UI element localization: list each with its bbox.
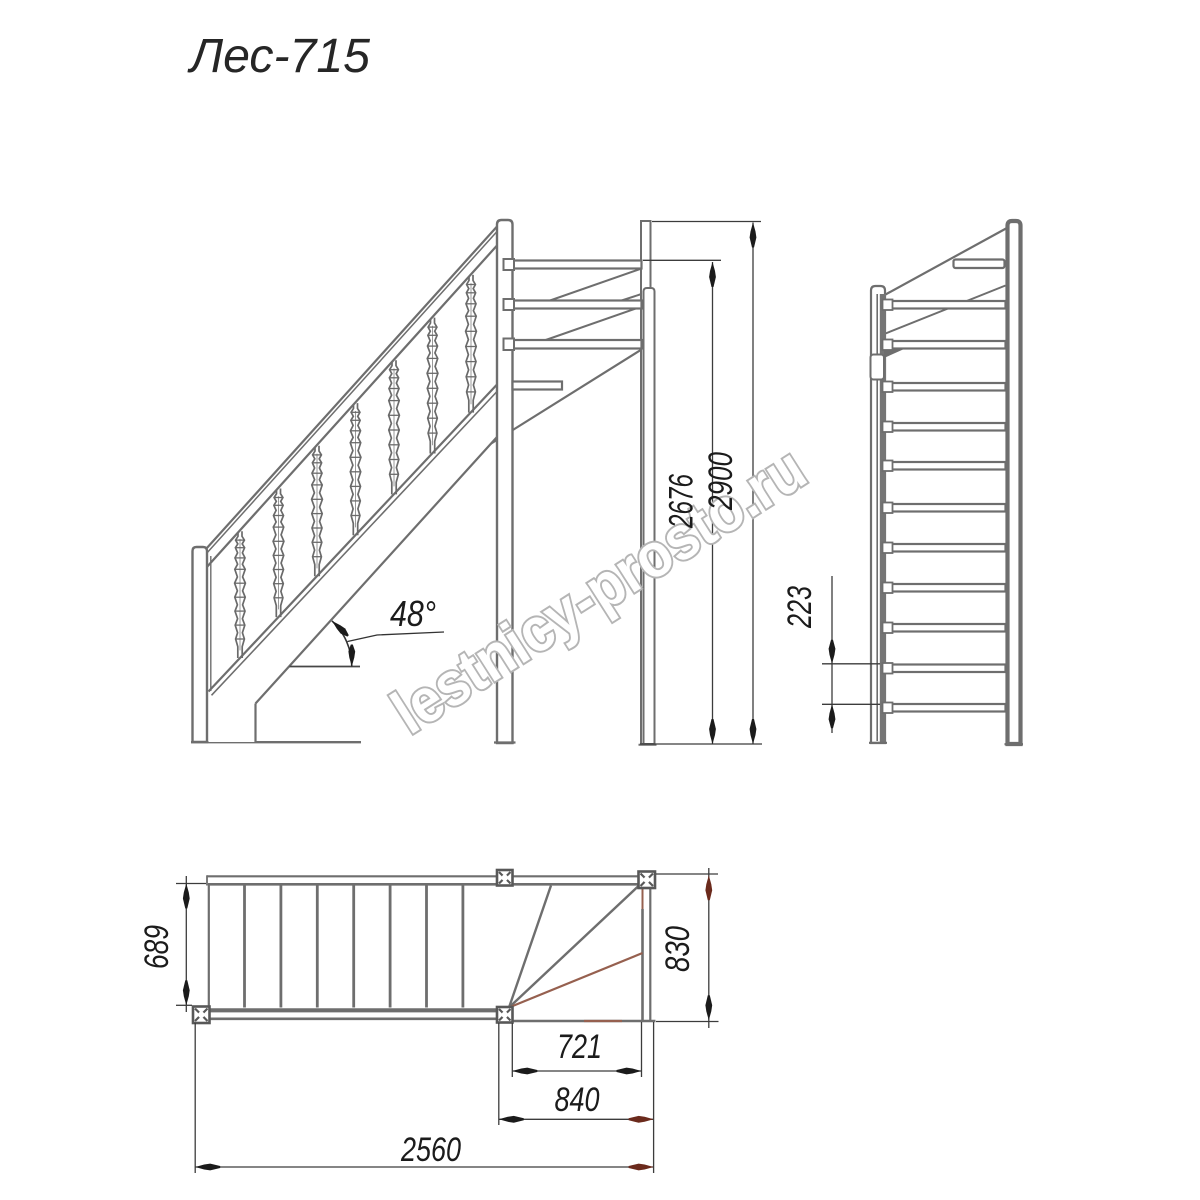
svg-text:223: 223	[781, 586, 819, 629]
svg-text:840: 840	[555, 1081, 600, 1119]
svg-text:2900: 2900	[702, 452, 740, 511]
svg-text:Лес-715: Лес-715	[187, 30, 370, 83]
svg-text:2560: 2560	[400, 1131, 461, 1169]
svg-text:721: 721	[557, 1028, 602, 1066]
svg-text:830: 830	[659, 926, 697, 972]
svg-text:2676: 2676	[663, 474, 701, 529]
svg-text:689: 689	[138, 925, 176, 969]
svg-text:48°: 48°	[390, 593, 436, 634]
